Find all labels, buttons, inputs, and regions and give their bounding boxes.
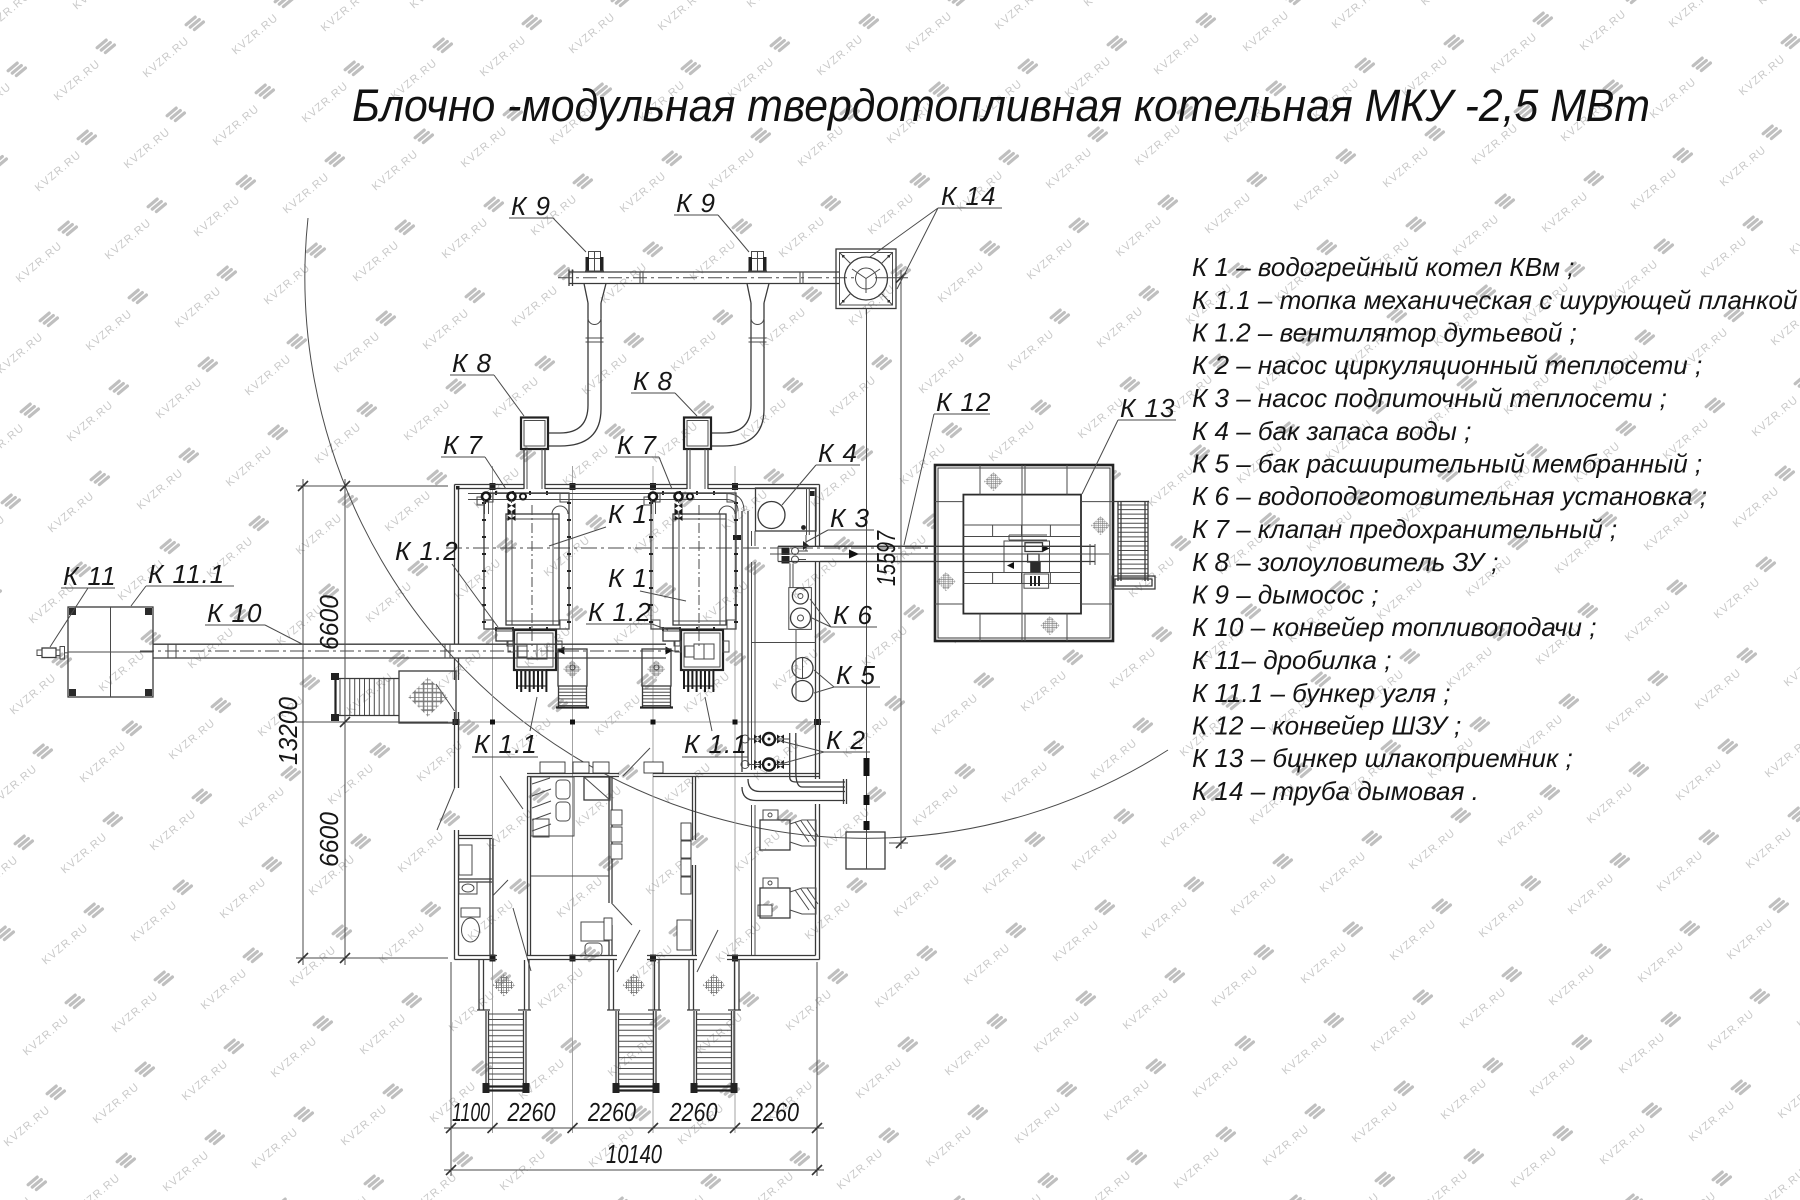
svg-text:К 3 – насос подпиточный теп: К 3 – насос подпиточный теплосети ;: [1192, 383, 1667, 413]
svg-text:2260: 2260: [669, 1097, 718, 1127]
svg-text:К 7: К 7: [443, 430, 484, 460]
svg-text:К 12 – конвейер ШЗУ ;: К 12 – конвейер ШЗУ ;: [1192, 711, 1461, 741]
svg-text:К 8: К 8: [452, 348, 492, 378]
svg-text:К 4: К 4: [818, 438, 858, 468]
svg-text:К 11: К 11: [63, 561, 117, 591]
svg-text:К 7: К 7: [617, 430, 658, 460]
svg-text:Блочно -модульная твердотоплив: Блочно -модульная твердотопливная котель…: [352, 80, 1650, 131]
svg-text:К 2: К 2: [826, 725, 866, 755]
svg-text:К 10 – конвейер топливопода: К 10 – конвейер топливоподачи ;: [1192, 612, 1596, 642]
svg-text:6600: 6600: [314, 594, 344, 650]
svg-text:К 11– дробилка ;: К 11– дробилка ;: [1192, 645, 1391, 675]
svg-text:К 1.2: К 1.2: [588, 597, 652, 627]
svg-text:К 7 – клапан предохранитель: К 7 – клапан предохранительный ;: [1192, 514, 1617, 544]
svg-text:2260: 2260: [507, 1097, 556, 1127]
svg-text:2260: 2260: [750, 1097, 799, 1127]
svg-text:К 13 – бцнкер шлакоприемник: К 13 – бцнкер шлакоприемник ;: [1192, 743, 1573, 773]
svg-text:К 1 – водогрейный котел КВм: К 1 – водогрейный котел КВм ;: [1192, 252, 1574, 282]
svg-text:К 3: К 3: [830, 503, 870, 533]
svg-text:1100: 1100: [452, 1097, 490, 1127]
svg-text:10140: 10140: [606, 1139, 662, 1169]
svg-text:К 1.1: К 1.1: [684, 729, 748, 759]
svg-text:2260: 2260: [587, 1097, 636, 1127]
svg-text:К 1.2: К 1.2: [395, 536, 459, 566]
svg-text:К 13: К 13: [1120, 393, 1175, 423]
svg-text:К 6: К 6: [833, 600, 873, 630]
svg-text:К 6 – водоподготовительная: К 6 – водоподготовительная установка ;: [1192, 481, 1707, 511]
svg-text:К 2 – насос циркуляционный: К 2 – насос циркуляционный теплосети ;: [1192, 350, 1702, 380]
svg-text:К 5 – бак расширительный ме: К 5 – бак расширительный мембранный ;: [1192, 449, 1702, 479]
svg-text:15597: 15597: [871, 530, 901, 586]
svg-text:К 1: К 1: [608, 499, 648, 529]
svg-text:К 12: К 12: [936, 387, 991, 417]
svg-text:К 5: К 5: [836, 660, 876, 690]
svg-text:К 1.2 – вентилятор дутьевой: К 1.2 – вентилятор дутьевой ;: [1192, 318, 1577, 348]
svg-text:К 14 – труба дымовая .: К 14 – труба дымовая .: [1192, 776, 1479, 806]
svg-text:К 1.1: К 1.1: [474, 729, 538, 759]
svg-text:К 14: К 14: [941, 181, 996, 211]
svg-text:К 10: К 10: [207, 598, 262, 628]
svg-text:К 8 – золоуловитель ЗУ ;: К 8 – золоуловитель ЗУ ;: [1192, 547, 1498, 577]
svg-text:К 1: К 1: [608, 563, 648, 593]
svg-text:К 9: К 9: [511, 191, 551, 221]
svg-text:К 11.1 – бункер угля ;: К 11.1 – бункер угля ;: [1192, 678, 1450, 708]
svg-text:К 11.1: К 11.1: [148, 559, 225, 589]
svg-text:К 4 – бак запаса воды ;: К 4 – бак запаса воды ;: [1192, 416, 1471, 446]
svg-text:6600: 6600: [314, 811, 344, 867]
svg-text:К 1.1 – топка механическая: К 1.1 – топка механическая с шурующей пл…: [1192, 285, 1800, 315]
svg-text:К 9: К 9: [676, 188, 716, 218]
svg-text:К 8: К 8: [633, 366, 673, 396]
svg-text:13200: 13200: [273, 697, 303, 765]
svg-text:К 9 – дымосос ;: К 9 – дымосос ;: [1192, 580, 1379, 610]
